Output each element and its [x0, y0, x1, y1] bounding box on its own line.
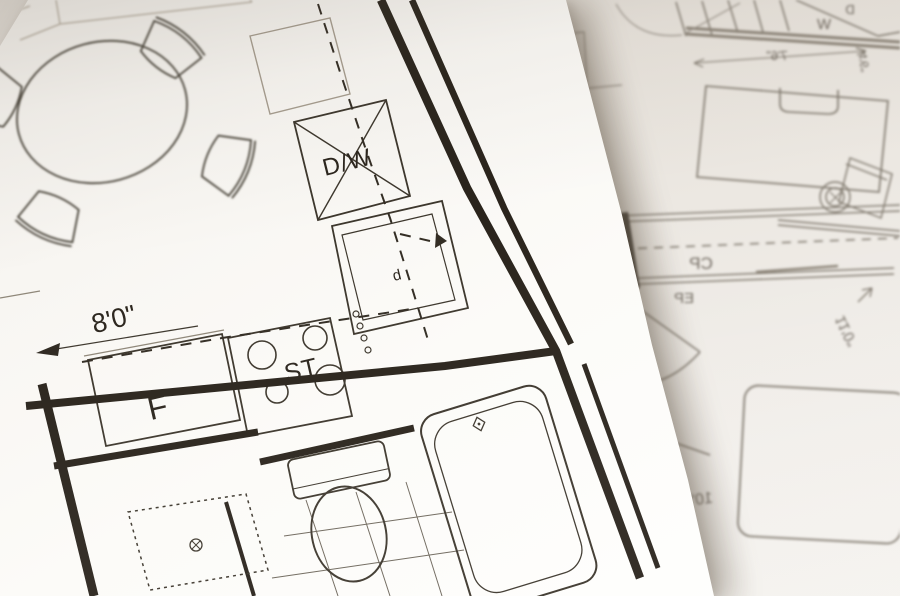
dishwasher-label: D/W — [320, 144, 375, 182]
burner — [248, 341, 276, 369]
main-wall-inner — [412, 0, 571, 344]
dining-chair — [13, 185, 88, 251]
toilet-room-wall — [260, 428, 414, 462]
blueprint-photo: W D 7'6" 4'6" b 6'0" CP EP 11'0" 10'0" — [0, 0, 900, 596]
upper-cabinet — [250, 18, 350, 114]
sink-cabinet — [332, 201, 468, 334]
burner — [303, 326, 327, 350]
dimension-arrowhead — [36, 343, 60, 356]
toilet — [287, 440, 396, 589]
kitchen-dimension-label: 8'0" — [88, 299, 139, 339]
main-wall — [381, 0, 640, 578]
dining-table — [1, 22, 203, 202]
dining-chair — [132, 13, 208, 86]
bathtub — [417, 381, 601, 596]
dining-chair — [0, 61, 28, 136]
faucet-icon — [471, 416, 487, 433]
front-floorplan-sheet: D/W d ST F 8'0" — [0, 0, 900, 596]
dining-chair — [196, 126, 260, 200]
left-wall — [42, 384, 94, 596]
walls — [0, 0, 658, 596]
sink-cabinet-label: d — [391, 266, 403, 285]
front-sheet-shadow-wrap: D/W d ST F 8'0" — [0, 0, 900, 596]
faint-counter-outline — [2, 0, 252, 40]
